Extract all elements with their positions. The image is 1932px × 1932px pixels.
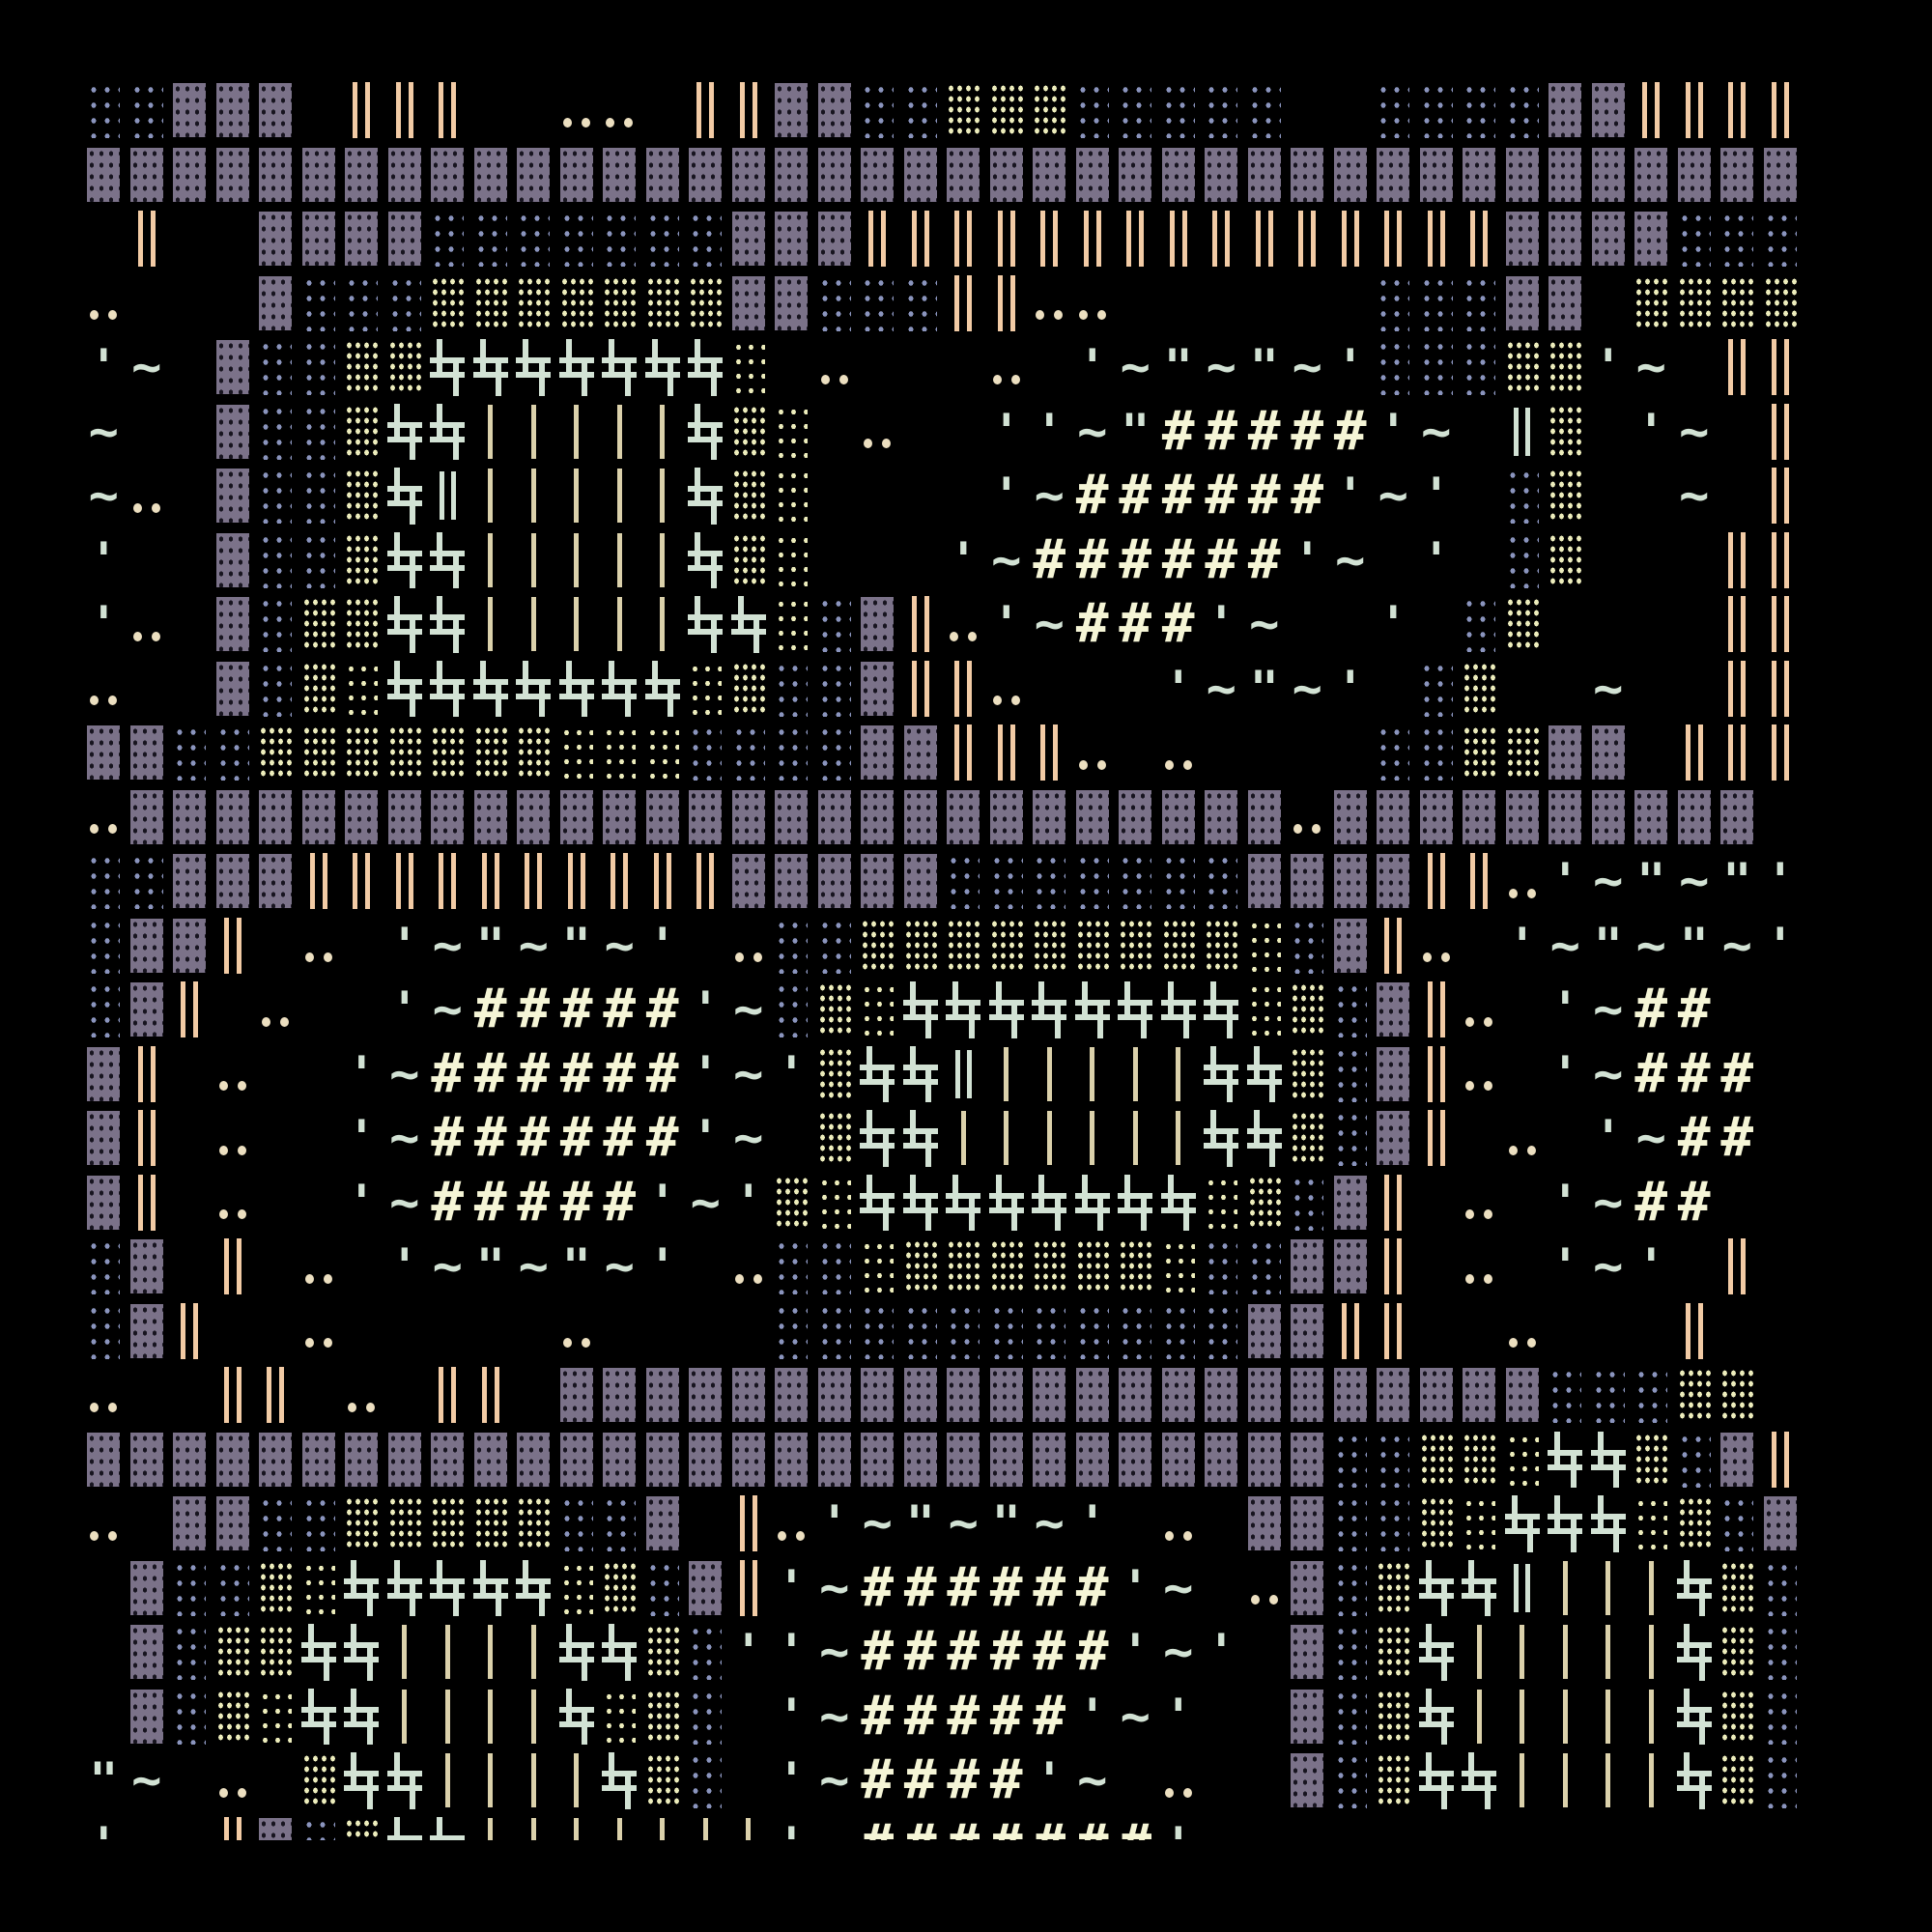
tilde-glyph: ~ [598, 1235, 641, 1299]
dense-dot-block-yellow [512, 721, 555, 785]
double-cross-mint [985, 978, 1029, 1042]
dense-dot-block-purple [254, 1428, 298, 1492]
dense-dot-block-purple [1028, 143, 1071, 208]
dense-dot-block-purple [298, 143, 341, 208]
tilde-glyph: ~ [1673, 464, 1717, 528]
hash-glyph: # [426, 1171, 469, 1236]
single-bar-tan [641, 400, 685, 465]
tilde-glyph: ~ [727, 978, 771, 1042]
dense-dot-block-purple [1415, 143, 1459, 208]
sparse-dot-block-yellow [1200, 1171, 1243, 1236]
apostrophe-glyph: ' [1157, 1685, 1201, 1749]
apostrophe-glyph: ' [1415, 528, 1459, 593]
single-bar-tan [1544, 1685, 1587, 1749]
single-bar-tan [1630, 1685, 1673, 1749]
dense-dot-block-yellow [1415, 1492, 1459, 1556]
dense-dot-block-purple [899, 785, 943, 850]
dense-dot-block-yellow [254, 721, 298, 785]
dense-dot-block-yellow [340, 1813, 384, 1841]
dense-dot-block-yellow [727, 464, 771, 528]
dense-dot-block-purple [813, 207, 857, 271]
hash-glyph: # [469, 1042, 513, 1107]
single-bar-tan [641, 464, 685, 528]
apostrophe-glyph: ' [1114, 1620, 1157, 1685]
sparse-dot-block-blue [856, 78, 899, 143]
hash-glyph: # [598, 1106, 641, 1171]
double-cross-mint [512, 657, 555, 722]
double-cross-mint [426, 335, 469, 400]
dense-dot-block-yellow [298, 1748, 341, 1813]
dense-dot-block-purple [1286, 1685, 1329, 1749]
sparse-dot-block-yellow [770, 464, 813, 528]
sparse-dot-block-blue [813, 1235, 857, 1299]
sparse-dot-block-blue [1587, 1363, 1631, 1428]
dense-dot-block-yellow [1458, 721, 1501, 785]
sparse-dot-block-blue [813, 914, 857, 979]
single-bar-tan [1458, 1685, 1501, 1749]
dense-dot-block-purple [1458, 1363, 1501, 1428]
sparse-dot-block-blue [1071, 849, 1115, 914]
tilde-glyph: ~ [1114, 1685, 1157, 1749]
dense-dot-block-purple [1458, 785, 1501, 850]
dense-dot-block-purple [212, 400, 255, 465]
dot-pair-cream [212, 1748, 255, 1813]
double-cross-mint [1458, 1556, 1501, 1621]
apostrophe-glyph: ' [1200, 592, 1243, 657]
sparse-dot-block-blue [298, 335, 341, 400]
double-bar-peach [1071, 207, 1115, 271]
double-bar-mint [942, 1042, 985, 1107]
dense-dot-block-purple [82, 1171, 126, 1236]
tilde-glyph: ~ [1028, 464, 1071, 528]
dot-pair-cream [1458, 1042, 1501, 1107]
double-bar-peach [985, 271, 1029, 336]
dense-dot-block-purple [168, 849, 212, 914]
double-quote-glyph: " [469, 1235, 513, 1299]
single-bar-tan [598, 464, 641, 528]
double-cross-mint [384, 1748, 427, 1813]
sparse-dot-block-blue [469, 207, 513, 271]
tilde-glyph: ~ [1200, 335, 1243, 400]
dense-dot-block-purple [340, 785, 384, 850]
sparse-dot-block-blue [899, 78, 943, 143]
dense-dot-block-yellow [856, 914, 899, 979]
dense-dot-block-purple [126, 1428, 169, 1492]
dense-dot-block-purple [1243, 1299, 1287, 1364]
dense-dot-block-purple [1501, 271, 1545, 336]
dense-dot-block-purple [126, 785, 169, 850]
hash-glyph: # [1157, 528, 1201, 593]
dense-dot-block-purple [813, 785, 857, 850]
sparse-dot-block-blue [82, 849, 126, 914]
dense-dot-block-purple [1243, 1363, 1287, 1428]
dense-dot-block-purple [555, 1428, 599, 1492]
dense-dot-block-purple [1286, 1363, 1329, 1428]
double-bar-peach [1415, 1042, 1459, 1107]
apostrophe-glyph: ' [813, 1492, 857, 1556]
dense-dot-block-purple [1286, 143, 1329, 208]
sparse-dot-block-blue [1458, 592, 1501, 657]
dense-dot-block-purple [82, 143, 126, 208]
hash-glyph: # [1243, 464, 1287, 528]
dense-dot-block-yellow [340, 528, 384, 593]
hash-glyph: # [1200, 464, 1243, 528]
single-bar-tan [1544, 1556, 1587, 1621]
tilde-glyph: ~ [426, 914, 469, 979]
dense-dot-block-purple [1458, 143, 1501, 208]
single-bar-tan [1071, 1106, 1115, 1171]
double-bar-mint [426, 464, 469, 528]
double-cross-mint [426, 657, 469, 722]
sparse-dot-block-blue [254, 400, 298, 465]
sparse-dot-block-blue [1114, 1299, 1157, 1364]
double-cross-mint [555, 657, 599, 722]
dense-dot-block-yellow [899, 914, 943, 979]
dense-dot-block-yellow [512, 271, 555, 336]
dense-dot-block-yellow [1028, 78, 1071, 143]
single-bar-tan [555, 528, 599, 593]
sparse-dot-block-blue [770, 1235, 813, 1299]
single-bar-tan [1501, 1620, 1545, 1685]
dense-dot-block-purple [384, 143, 427, 208]
double-quote-glyph: " [985, 1492, 1029, 1556]
apostrophe-glyph: ' [1587, 335, 1631, 400]
double-bar-peach [212, 1813, 255, 1841]
dense-dot-block-purple [1372, 785, 1415, 850]
double-bar-peach [212, 914, 255, 979]
apostrophe-glyph: ' [727, 1620, 771, 1685]
dense-dot-block-purple [727, 271, 771, 336]
sparse-dot-block-yellow [770, 528, 813, 593]
single-bar-tan [512, 1813, 555, 1841]
dense-dot-block-purple [168, 1492, 212, 1556]
double-quote-glyph: " [1716, 849, 1759, 914]
apostrophe-glyph: ' [1329, 464, 1373, 528]
hash-glyph: # [942, 1620, 985, 1685]
dot-pair-cream [212, 1106, 255, 1171]
sparse-dot-block-blue [1114, 849, 1157, 914]
dense-dot-block-yellow [298, 721, 341, 785]
double-cross-mint [1673, 1620, 1717, 1685]
dense-dot-block-purple [1587, 785, 1631, 850]
dense-dot-block-purple [1114, 785, 1157, 850]
single-bar-tan [555, 1748, 599, 1813]
dense-dot-block-purple [1329, 849, 1373, 914]
hash-glyph: # [1716, 1106, 1759, 1171]
sparse-dot-block-blue [813, 592, 857, 657]
dense-dot-block-purple [555, 785, 599, 850]
dense-dot-block-yellow [1716, 1556, 1759, 1621]
dense-dot-block-purple [1200, 1428, 1243, 1492]
sparse-dot-block-blue [512, 207, 555, 271]
hash-glyph: # [512, 1042, 555, 1107]
hash-glyph: # [985, 1813, 1029, 1841]
dense-dot-block-yellow [384, 1492, 427, 1556]
apostrophe-glyph: ' [1157, 1813, 1201, 1841]
dense-dot-block-purple [770, 143, 813, 208]
dense-dot-block-purple [1415, 1363, 1459, 1428]
dense-dot-block-purple [942, 1363, 985, 1428]
sparse-dot-block-blue [1372, 721, 1415, 785]
dense-dot-block-purple [1286, 849, 1329, 914]
hash-glyph: # [942, 1813, 985, 1841]
dense-dot-block-purple [1673, 785, 1717, 850]
dense-dot-block-purple [856, 849, 899, 914]
sparse-dot-block-blue [1286, 1171, 1329, 1236]
sparse-dot-block-blue [1501, 528, 1545, 593]
single-bar-tan [426, 1748, 469, 1813]
sparse-dot-block-blue [1329, 1428, 1373, 1492]
sparse-dot-block-blue [168, 721, 212, 785]
sparse-dot-block-blue [1329, 1042, 1373, 1107]
tilde-glyph: ~ [1157, 1556, 1201, 1621]
hash-glyph: # [985, 1685, 1029, 1749]
double-cross-mint [1544, 1492, 1587, 1556]
sparse-dot-block-yellow [1630, 1492, 1673, 1556]
double-bar-peach [1759, 400, 1803, 465]
dense-dot-block-purple [555, 1363, 599, 1428]
dense-dot-block-purple [1157, 143, 1201, 208]
dense-dot-block-yellow [1501, 335, 1545, 400]
dense-dot-block-yellow [1458, 657, 1501, 722]
dense-dot-block-yellow [1372, 1685, 1415, 1749]
single-bar-tan [469, 1748, 513, 1813]
hash-glyph: # [598, 1042, 641, 1107]
dot-pair-cream [126, 464, 169, 528]
double-bar-peach [1372, 1171, 1415, 1236]
double-cross-mint [598, 1620, 641, 1685]
hash-glyph: # [856, 1685, 899, 1749]
double-bar-peach [1759, 721, 1803, 785]
apostrophe-glyph: ' [1329, 335, 1373, 400]
dense-dot-block-yellow [1501, 592, 1545, 657]
dense-dot-block-purple [641, 1363, 685, 1428]
hash-glyph: # [555, 1106, 599, 1171]
sparse-dot-block-blue [1372, 78, 1415, 143]
apostrophe-glyph: ' [340, 1171, 384, 1236]
sparse-dot-block-yellow [1501, 1428, 1545, 1492]
double-bar-peach [1243, 207, 1287, 271]
hash-glyph: # [469, 978, 513, 1042]
dense-dot-block-purple [598, 143, 641, 208]
double-bar-peach [1759, 592, 1803, 657]
sparse-dot-block-blue [1071, 1299, 1115, 1364]
hash-glyph: # [1114, 1813, 1157, 1841]
double-cross-mint [1458, 1748, 1501, 1813]
single-bar-tan [555, 464, 599, 528]
hash-glyph: # [1286, 400, 1329, 465]
dense-dot-block-yellow [1028, 1235, 1071, 1299]
dense-dot-block-purple [1372, 1363, 1415, 1428]
sparse-dot-block-blue [1200, 849, 1243, 914]
single-bar-tan [512, 464, 555, 528]
dense-dot-block-yellow [1716, 1685, 1759, 1749]
double-cross-mint [340, 1620, 384, 1685]
dense-dot-block-purple [254, 785, 298, 850]
double-bar-peach [1716, 335, 1759, 400]
sparse-dot-block-blue [813, 657, 857, 722]
apostrophe-glyph: ' [82, 1813, 126, 1841]
sparse-dot-block-blue [168, 1556, 212, 1621]
sparse-dot-block-blue [1458, 271, 1501, 336]
dense-dot-block-yellow [1716, 1748, 1759, 1813]
apostrophe-glyph: ' [1630, 400, 1673, 465]
dot-pair-cream [1286, 785, 1329, 850]
sparse-dot-block-blue [1329, 978, 1373, 1042]
dense-dot-block-purple [1501, 143, 1545, 208]
hash-glyph: # [856, 1813, 899, 1841]
dense-dot-block-yellow [1114, 1235, 1157, 1299]
sparse-dot-block-blue [856, 271, 899, 336]
dense-dot-block-purple [298, 785, 341, 850]
apostrophe-glyph: ' [985, 464, 1029, 528]
sparse-dot-block-yellow [727, 335, 771, 400]
dense-dot-block-yellow [1372, 1556, 1415, 1621]
dense-dot-block-purple [1157, 1428, 1201, 1492]
apostrophe-glyph: ' [1286, 528, 1329, 593]
double-bar-peach [426, 1363, 469, 1428]
single-bar-tan [1587, 1556, 1631, 1621]
hash-glyph: # [1673, 978, 1717, 1042]
dense-dot-block-purple [684, 1363, 727, 1428]
dot-pair-cream [1501, 1106, 1545, 1171]
single-bar-tan [641, 592, 685, 657]
sparse-dot-block-blue [770, 721, 813, 785]
double-quote-glyph: " [1157, 335, 1201, 400]
dot-pair-cream [82, 785, 126, 850]
double-bar-peach [1372, 1235, 1415, 1299]
sparse-dot-block-yellow [298, 1556, 341, 1621]
dense-dot-block-yellow [1415, 1428, 1459, 1492]
dense-dot-block-purple [1200, 785, 1243, 850]
double-bar-peach [899, 207, 943, 271]
apostrophe-glyph: ' [641, 1235, 685, 1299]
single-bar-tan [512, 400, 555, 465]
dense-dot-block-purple [856, 657, 899, 722]
single-bar-tan [555, 592, 599, 657]
dense-dot-block-purple [770, 78, 813, 143]
hash-glyph: # [1243, 400, 1287, 465]
dense-dot-block-purple [684, 1428, 727, 1492]
double-bar-peach [1759, 78, 1803, 143]
dot-pair-cream [254, 978, 298, 1042]
dense-dot-block-purple [1544, 207, 1587, 271]
sparse-dot-block-blue [899, 271, 943, 336]
double-bar-peach [1716, 78, 1759, 143]
dense-dot-block-purple [942, 1428, 985, 1492]
double-cross-mint [469, 1556, 513, 1621]
apostrophe-glyph: ' [82, 592, 126, 657]
dense-dot-block-purple [1243, 849, 1287, 914]
dot-pair-cream [1157, 1492, 1201, 1556]
apostrophe-glyph: ' [1071, 335, 1115, 400]
double-bar-peach [942, 721, 985, 785]
dense-dot-block-purple [82, 1428, 126, 1492]
single-bar-tan [1587, 1748, 1631, 1813]
dense-dot-block-purple [856, 592, 899, 657]
dense-dot-block-purple [813, 1363, 857, 1428]
tilde-glyph: ~ [126, 1748, 169, 1813]
tilde-glyph: ~ [126, 335, 169, 400]
hash-glyph: # [856, 1556, 899, 1621]
sparse-dot-block-yellow [598, 721, 641, 785]
double-bar-peach [727, 1492, 771, 1556]
sparse-dot-block-yellow [598, 1685, 641, 1749]
dot-pair-cream [298, 1235, 341, 1299]
sparse-dot-block-blue [1501, 78, 1545, 143]
dense-dot-block-purple [1372, 849, 1415, 914]
sparse-dot-block-yellow [1243, 914, 1287, 979]
sparse-dot-block-blue [684, 721, 727, 785]
single-bar-tan [1630, 1748, 1673, 1813]
double-cross-mint [856, 1042, 899, 1107]
hash-glyph: # [426, 1106, 469, 1171]
dense-dot-block-purple [82, 721, 126, 785]
dense-dot-block-purple [212, 143, 255, 208]
dense-dot-block-yellow [813, 978, 857, 1042]
sparse-dot-block-blue [1243, 78, 1287, 143]
dense-dot-block-yellow [1544, 528, 1587, 593]
dense-dot-block-yellow [813, 1106, 857, 1171]
tilde-glyph: ~ [1286, 657, 1329, 722]
sparse-dot-block-blue [1329, 1620, 1373, 1685]
dense-dot-block-purple [212, 785, 255, 850]
dot-pair-cream [1501, 1299, 1545, 1364]
double-quote-glyph: " [1114, 400, 1157, 465]
double-bar-peach [512, 849, 555, 914]
single-bar-tan [512, 1685, 555, 1749]
dot-pair-cream [298, 914, 341, 979]
hash-glyph: # [512, 1106, 555, 1171]
double-bar-peach [856, 207, 899, 271]
dense-dot-block-purple [469, 143, 513, 208]
hash-glyph: # [512, 978, 555, 1042]
double-cross-mint [598, 1748, 641, 1813]
apostrophe-glyph: ' [1071, 1492, 1115, 1556]
dense-dot-block-purple [1329, 1171, 1373, 1236]
double-cross-mint [899, 978, 943, 1042]
dense-dot-block-yellow [1716, 1620, 1759, 1685]
hash-glyph: # [1028, 528, 1071, 593]
hash-glyph: # [469, 1106, 513, 1171]
sparse-dot-block-blue [1415, 335, 1459, 400]
dense-dot-block-yellow [1673, 1363, 1717, 1428]
dense-dot-block-purple [641, 1428, 685, 1492]
single-bar-tan [469, 592, 513, 657]
dense-dot-block-purple [212, 849, 255, 914]
sparse-dot-block-blue [1716, 207, 1759, 271]
sparse-dot-block-blue [641, 207, 685, 271]
double-cross-mint [512, 335, 555, 400]
dot-pair-cream [1028, 271, 1071, 336]
dot-pair-cream [1243, 1556, 1287, 1621]
double-bar-peach [1372, 207, 1415, 271]
dense-dot-block-yellow [770, 1171, 813, 1236]
sparse-dot-block-blue [813, 271, 857, 336]
sparse-dot-block-blue [1200, 1299, 1243, 1364]
single-bar-tan [684, 1813, 727, 1841]
apostrophe-glyph: ' [1501, 914, 1545, 979]
double-bar-peach [1286, 207, 1329, 271]
dense-dot-block-purple [1630, 143, 1673, 208]
dot-pair-cream [985, 657, 1029, 722]
tilde-glyph: ~ [1286, 335, 1329, 400]
double-cross-mint [1028, 978, 1071, 1042]
tilde-glyph: ~ [1673, 400, 1717, 465]
dot-pair-cream [813, 335, 857, 400]
double-cross-mint [1415, 1685, 1459, 1749]
dense-dot-block-yellow [340, 335, 384, 400]
